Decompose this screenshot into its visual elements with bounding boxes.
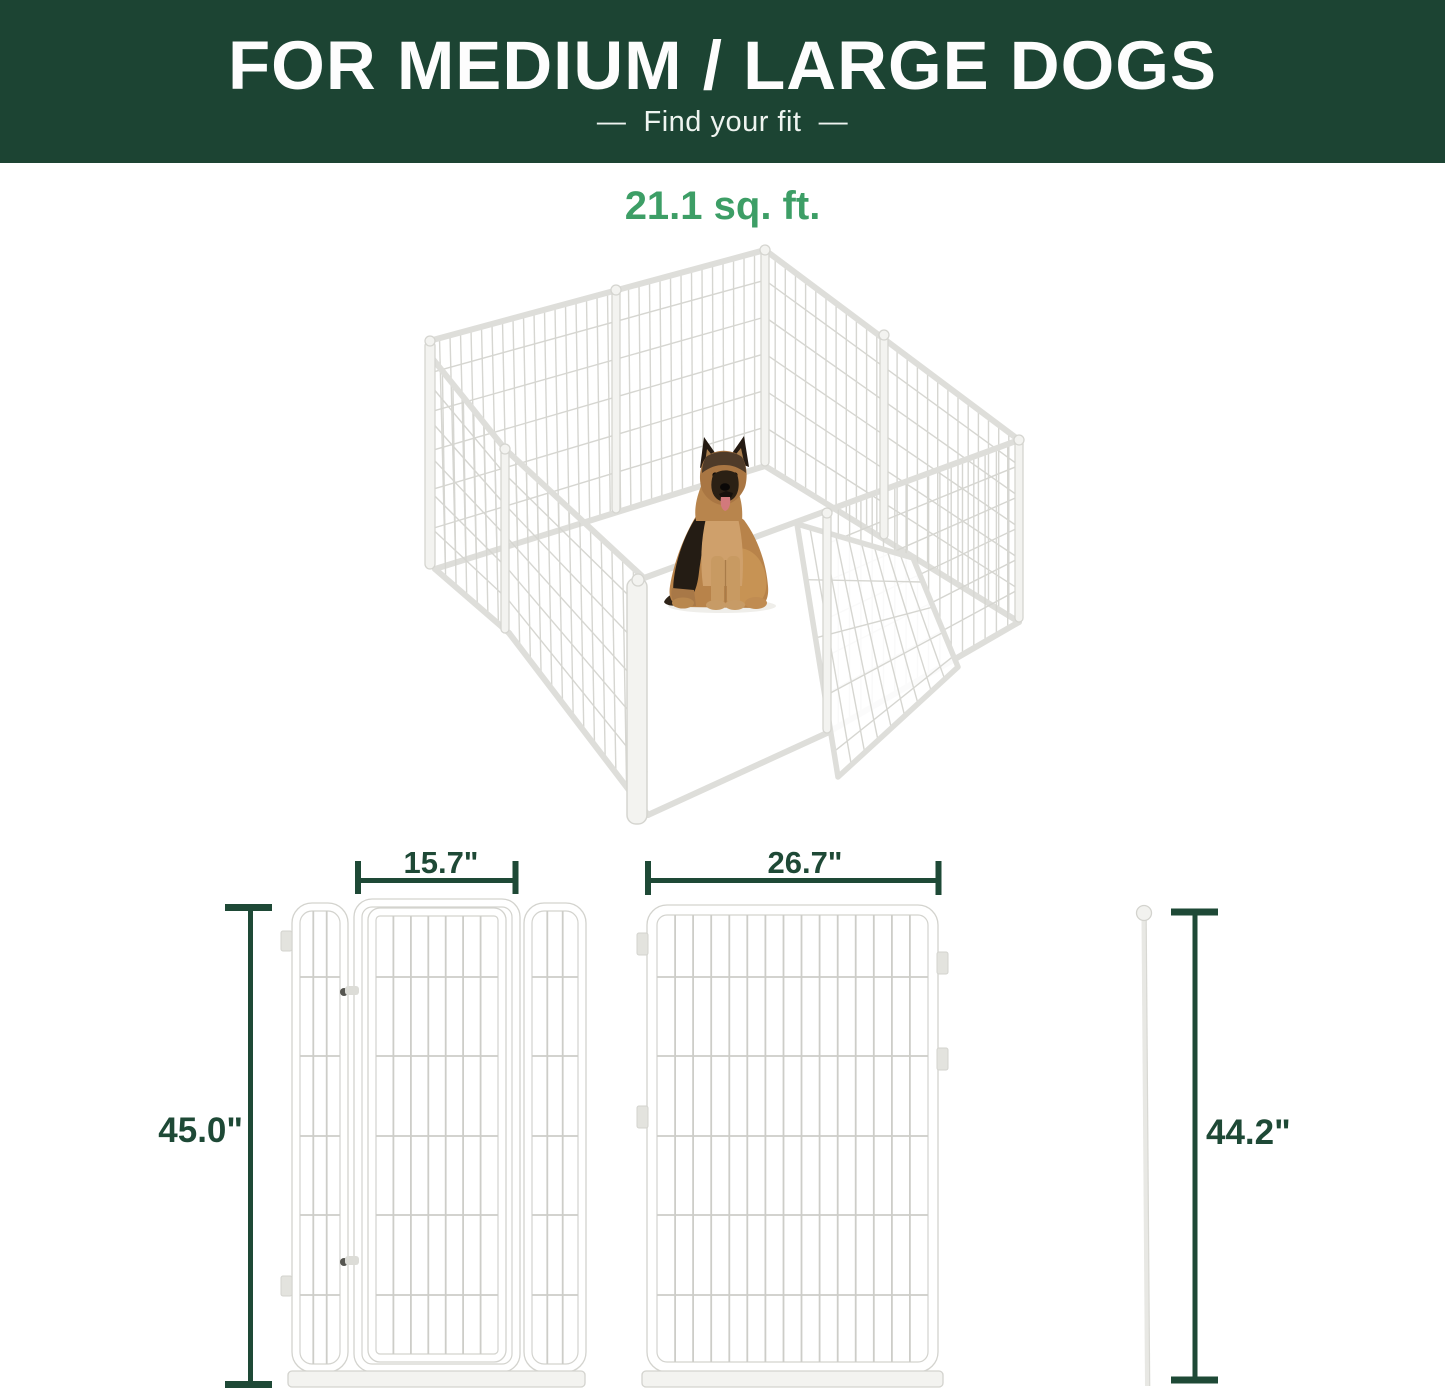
svg-text:45.0": 45.0"	[158, 1111, 243, 1150]
svg-text:15.7": 15.7"	[403, 845, 478, 880]
svg-text:44.2": 44.2"	[1206, 1113, 1291, 1152]
svg-text:26.7": 26.7"	[767, 845, 842, 880]
